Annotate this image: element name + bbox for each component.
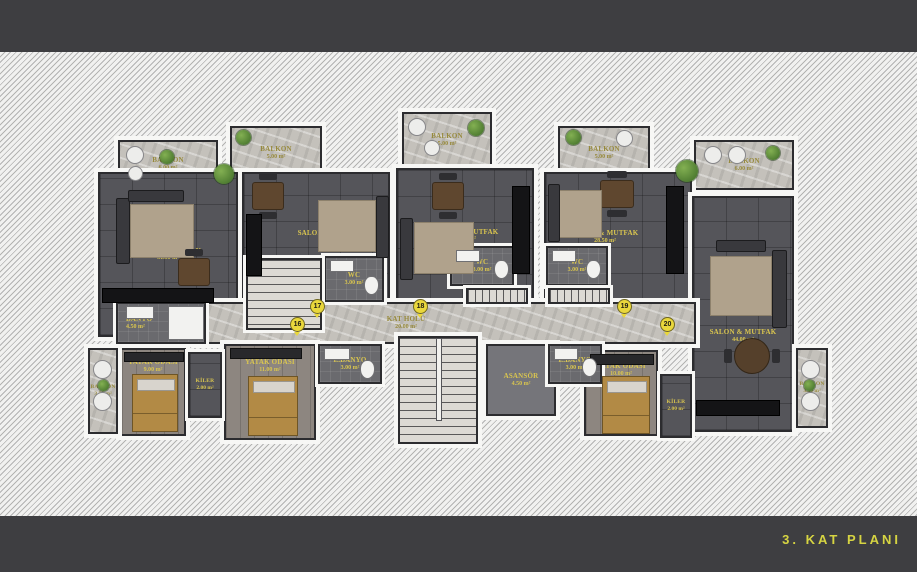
top-dark-bar <box>0 0 917 52</box>
bottom-dark-bar <box>0 516 917 572</box>
room-label: WC <box>348 271 360 280</box>
room-label: BALKON <box>260 145 292 154</box>
bed <box>248 376 298 436</box>
sofa <box>376 196 389 258</box>
sofa <box>772 250 787 328</box>
balcony-table <box>93 392 112 411</box>
room-area: 5.00 m² <box>267 154 286 161</box>
room-area: 5.00 m² <box>438 141 457 148</box>
sink <box>324 348 350 360</box>
plan-title: 3. KAT PLANI <box>782 532 901 547</box>
duplex-stairs-mid <box>466 288 528 304</box>
plant <box>236 130 251 145</box>
door-number-badge: 18 <box>413 299 428 314</box>
room-label: ASANSÖR <box>504 372 539 381</box>
room-area: 5.00 m² <box>595 154 614 161</box>
room-area: 2.00 m² <box>667 406 684 413</box>
room-label: SALON & MUTFAK <box>710 328 777 337</box>
balcony-table <box>424 140 440 156</box>
room-area: 6.00 m² <box>735 166 754 173</box>
kitchen-counter <box>666 186 684 274</box>
dining-table-round <box>734 338 770 374</box>
room-area: 6.00 m² <box>159 165 178 172</box>
dining-table <box>252 182 284 210</box>
room-label: YATAK ODASI <box>245 358 295 367</box>
door-number-badge: 17 <box>310 299 325 314</box>
main-staircase <box>398 336 478 444</box>
rug <box>710 256 772 316</box>
sofa <box>128 190 184 202</box>
dining-table <box>178 258 210 286</box>
plant <box>766 146 780 160</box>
bed <box>132 374 178 432</box>
balcony-table <box>801 360 820 379</box>
sink <box>552 250 576 262</box>
room-elevator: ASANSÖR4.50 m² <box>486 344 556 416</box>
rug <box>414 222 474 274</box>
balcony-table <box>126 146 144 164</box>
room-label: KİLER <box>667 399 686 406</box>
bathtub <box>168 306 204 340</box>
toilet <box>586 260 601 279</box>
sofa <box>716 240 766 252</box>
bed <box>602 376 650 434</box>
balcony-table <box>704 146 722 164</box>
room-label: BALKON <box>588 145 620 154</box>
room-area: 3.00 m² <box>341 365 360 372</box>
room-area: 28.50 m² <box>594 238 616 245</box>
plant <box>160 150 174 164</box>
room-area: 3.00 m² <box>345 280 364 287</box>
floor-plan-canvas: 3. KAT PLANI BALKON6.00 m² BALKON5.00 m²… <box>0 0 917 572</box>
room-kiler-4: KİLER2.00 m² <box>660 374 692 438</box>
balcony-table <box>93 360 112 379</box>
kitchen-counter <box>512 186 530 274</box>
plant <box>804 380 815 391</box>
rug <box>318 200 376 252</box>
duplex-stairs-right <box>548 288 610 304</box>
room-area: 3.00 m² <box>568 267 587 274</box>
dining-table <box>600 180 634 208</box>
plant <box>676 160 698 182</box>
room-label: KİLER <box>196 378 215 385</box>
toilet <box>360 360 375 379</box>
sofa <box>400 218 413 280</box>
room-area: 4.50 m² <box>512 381 531 388</box>
door-number-badge: 16 <box>290 317 305 332</box>
room-kiler-1: KİLER2.00 m² <box>188 352 222 418</box>
door-number-badge: 19 <box>617 299 632 314</box>
kitchen-counter <box>102 288 214 303</box>
balcony-table <box>801 392 820 411</box>
sink <box>554 348 578 360</box>
room-area: 9.00 m² <box>144 367 163 374</box>
wardrobe <box>124 352 184 362</box>
plant <box>566 130 581 145</box>
room-area: 3.00 m² <box>473 267 492 274</box>
room-label: BALKON <box>431 132 463 141</box>
room-area: 2.00 m² <box>196 385 213 392</box>
kitchen-counter <box>246 214 262 276</box>
room-area: 4.50 m² <box>126 324 145 331</box>
toilet <box>494 260 509 279</box>
sink <box>330 260 354 272</box>
balcony-table <box>128 166 143 181</box>
sink <box>126 306 154 319</box>
toilet <box>364 276 379 295</box>
door-number-badge: 20 <box>660 317 675 332</box>
balcony-table <box>728 146 746 164</box>
sink <box>456 250 480 262</box>
dining-table <box>432 182 464 210</box>
toilet <box>582 358 597 377</box>
sofa <box>116 198 130 264</box>
plant <box>468 120 484 136</box>
plant <box>98 380 109 391</box>
plant <box>214 164 234 184</box>
wardrobe <box>590 354 654 365</box>
balcony-table <box>616 130 633 147</box>
sofa <box>548 184 560 242</box>
room-area: 11.00 m² <box>259 367 280 374</box>
balcony-table <box>408 118 426 136</box>
kitchen-counter <box>696 400 780 416</box>
wardrobe <box>230 348 302 359</box>
room-area: 20.00 m² <box>395 324 417 331</box>
